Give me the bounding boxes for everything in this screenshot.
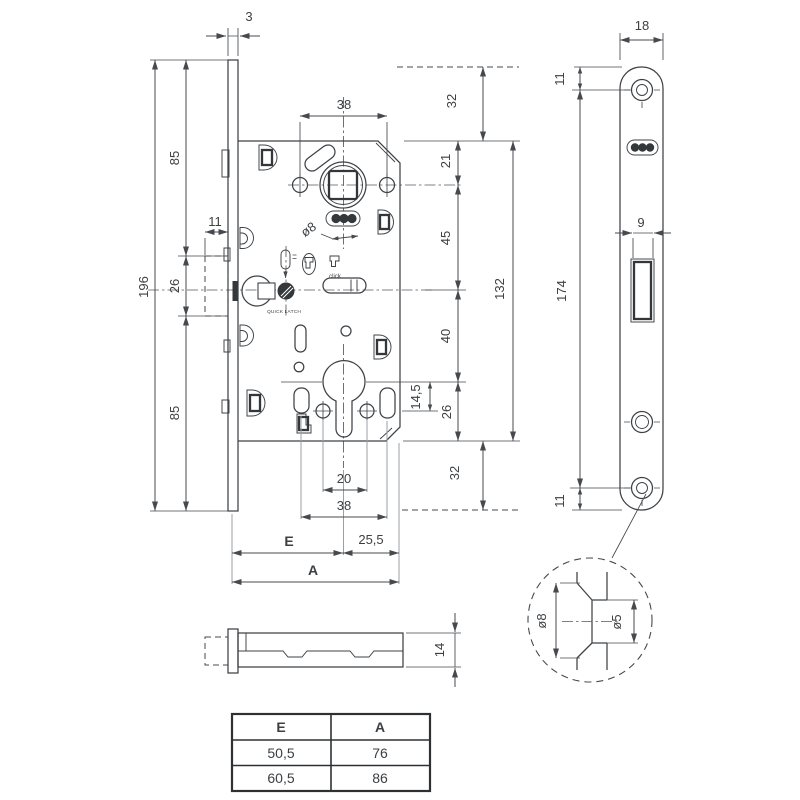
detail-leader-line (612, 494, 646, 558)
agb-logo-dot (339, 214, 348, 223)
dim-cylinder-to-back: 25,5 (358, 532, 383, 547)
euro-cylinder-hole (323, 361, 365, 437)
dim-faceplate-width: 18 (635, 18, 649, 33)
magnet-keeper-dashed (205, 256, 228, 316)
screw-hole-crosses (313, 401, 377, 421)
oblong-slot-mid (295, 325, 306, 352)
dim-magnet-zone: 26 (167, 279, 182, 293)
faceplate-outline (620, 67, 663, 510)
faceplate-edge-view (222, 60, 254, 511)
dim-top-holes-spacing: 38 (337, 97, 351, 112)
lock-front-view: 3 196 85 26 85 11 38 32 21 45 (136, 9, 520, 584)
dim-case-height: 132 (492, 278, 507, 300)
top-screw-ticks (624, 90, 660, 108)
d-stamp-right-slot (380, 215, 389, 229)
dim-cylinder-screws-spacing: 20 (337, 471, 351, 486)
dim-overall-height: 196 (136, 276, 151, 298)
table-cell-e2: 60,5 (267, 770, 294, 786)
top-screw-hole (632, 80, 653, 101)
faceplate-front-view: 18 11 174 9 11 (552, 18, 671, 558)
dim-line-o8 (332, 236, 358, 239)
dim-plate-thickness: 3 (245, 9, 252, 24)
dimensions-right: 32 21 45 132 40 14,5 26 32 (366, 67, 520, 510)
agb-logo-dot (347, 214, 356, 223)
mid-hole (632, 412, 653, 433)
dim-top-screw-offset: 11 (552, 72, 567, 86)
oblong-hole-left (294, 388, 309, 413)
bottom-screw-hole-inner (637, 483, 648, 494)
dim-o8-leader (321, 234, 332, 239)
faceplate-dimensions: 18 11 174 9 11 (552, 18, 671, 510)
latch-window-inner (634, 262, 651, 319)
dim-upper-section: 85 (167, 151, 182, 165)
table-cell-a2: 86 (372, 770, 388, 786)
mid-hole-inner (636, 416, 649, 429)
latch-hook-upper (240, 228, 254, 249)
dim-total-depth: A (308, 562, 318, 578)
spec-table: E A 50,5 76 60,5 86 (232, 714, 430, 791)
table-header-E: E (276, 719, 285, 735)
table-cell-e1: 50,5 (267, 745, 294, 761)
faceplate-logo-dot (631, 143, 639, 151)
countersink-detail-view: ø8 ø5 (528, 558, 652, 682)
faceplate-flange (228, 629, 238, 673)
small-hole-left (294, 362, 304, 372)
oblong-hole-right (380, 388, 395, 418)
technical-drawing-page: 3 196 85 26 85 11 38 32 21 45 (0, 0, 800, 800)
d-stamp-top-left-slot (262, 150, 272, 165)
dim-latch-to-cylinder: 40 (438, 329, 453, 343)
latch-slot-fill (233, 281, 238, 301)
top-screw-hole-inner (637, 85, 648, 96)
cam-icon-2 (330, 256, 339, 267)
table-grid (232, 714, 430, 791)
dim-latch-window-width: 9 (637, 215, 644, 230)
latch-bolt-slot (323, 278, 366, 293)
selector-slot (281, 250, 290, 269)
dim-backset: E (284, 533, 293, 549)
dim-cylinder-to-bottom: 26 (439, 405, 454, 419)
bottom-screw-hole (632, 478, 653, 499)
dim-plate-bottom-offset: 32 (447, 466, 462, 480)
detail-extension-lines (560, 583, 638, 658)
case-corner-ticks (376, 143, 395, 439)
click-label: click (329, 274, 342, 280)
dim-hub-to-latch: 45 (438, 231, 453, 245)
dim-hole-diameter-detail: ø5 (609, 614, 624, 629)
agb-logo-dot (331, 214, 340, 223)
side-dimensions: 14 (406, 613, 461, 687)
d-stamp-bottom-left-slot (250, 395, 260, 411)
table-header-A: A (375, 719, 385, 735)
dim-cylinder-offset: 14,5 (408, 384, 423, 409)
dim-screws-spacing: 174 (554, 280, 569, 302)
quick-latch-label: QUICK LATCH (267, 309, 301, 315)
case-split-line (238, 633, 403, 657)
dim-bottom-screw-offset: 11 (552, 494, 567, 508)
selector-marks (293, 255, 297, 259)
extension-lines-left (150, 28, 238, 511)
case-body-side (238, 633, 403, 667)
lock-technical-drawing: 3 196 85 26 85 11 38 32 21 45 (0, 0, 800, 800)
dim-case-thickness: 14 (432, 643, 447, 657)
faceplate-extension-lines (570, 33, 663, 510)
dim-hole-diameter: ø8 (298, 219, 319, 240)
magnet-notch (258, 283, 275, 299)
strike-box-dashed (205, 637, 228, 665)
keeper-tabs (222, 150, 230, 413)
dimensions-left: 3 196 85 26 85 11 (136, 9, 260, 511)
dim-magnet-depth: 11 (208, 214, 222, 229)
d-stamp-mid-right-slot (377, 340, 386, 354)
cam-icon-ellipse (303, 254, 316, 275)
latch-hook-lower (240, 325, 254, 346)
countersink-profile (577, 583, 607, 658)
cam-icon-1 (305, 258, 313, 269)
dim-case-top-to-hub: 21 (438, 154, 453, 168)
lock-side-view: 14 (205, 613, 461, 687)
extension-lines-top (300, 122, 387, 177)
dim-countersink-diameter: ø8 (534, 613, 549, 628)
bracket-slot (299, 417, 308, 430)
bottom-screw-ticks (624, 488, 660, 506)
small-hole-center (341, 326, 351, 336)
dim-plate-top-offset: 32 (444, 94, 459, 108)
dim-lower-section: 85 (167, 406, 182, 420)
faceplate-logo-dot (638, 143, 646, 151)
faceplate-logo-dot (646, 143, 654, 151)
dim-lower-holes-spacing: 38 (337, 498, 351, 513)
table-cell-a1: 76 (372, 745, 388, 761)
